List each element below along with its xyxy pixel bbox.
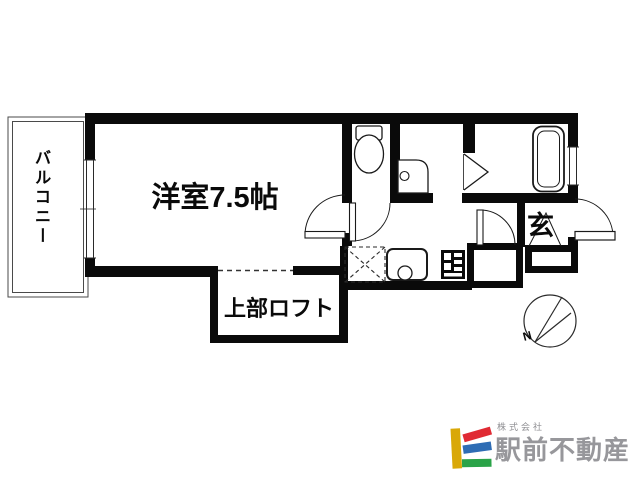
storage-box	[467, 243, 523, 288]
main-room-label: 洋室7.5帖	[125, 174, 305, 216]
floor-plan-image: バルコニー 洋室7.5帖 上部ロフト 玄 N 株式会社 駅前不動産	[0, 0, 640, 480]
logo-mark	[450, 427, 492, 469]
toilet-icon	[355, 126, 384, 173]
company-name-label: 駅前不動産	[495, 430, 630, 467]
washing-machine-space-icon	[345, 247, 385, 282]
door-swing-hall	[477, 210, 515, 245]
loft-label: 上部ロフト	[213, 291, 345, 323]
bathtub-icon	[533, 127, 564, 192]
window-icon	[80, 160, 96, 258]
washbasin-icon	[398, 160, 428, 193]
window-icon	[567, 147, 579, 185]
folding-door-icon	[464, 154, 489, 190]
entrance-label: 玄	[527, 204, 554, 243]
balcony-label: バルコニー	[29, 149, 53, 247]
door-swing-toilet	[350, 203, 391, 241]
kitchen-sink-icon	[387, 249, 427, 280]
stove-icon	[441, 250, 465, 279]
shoe-cabinet-box	[525, 245, 578, 273]
entrance-door-swing	[575, 199, 615, 240]
door-swing-main-room	[305, 195, 345, 238]
